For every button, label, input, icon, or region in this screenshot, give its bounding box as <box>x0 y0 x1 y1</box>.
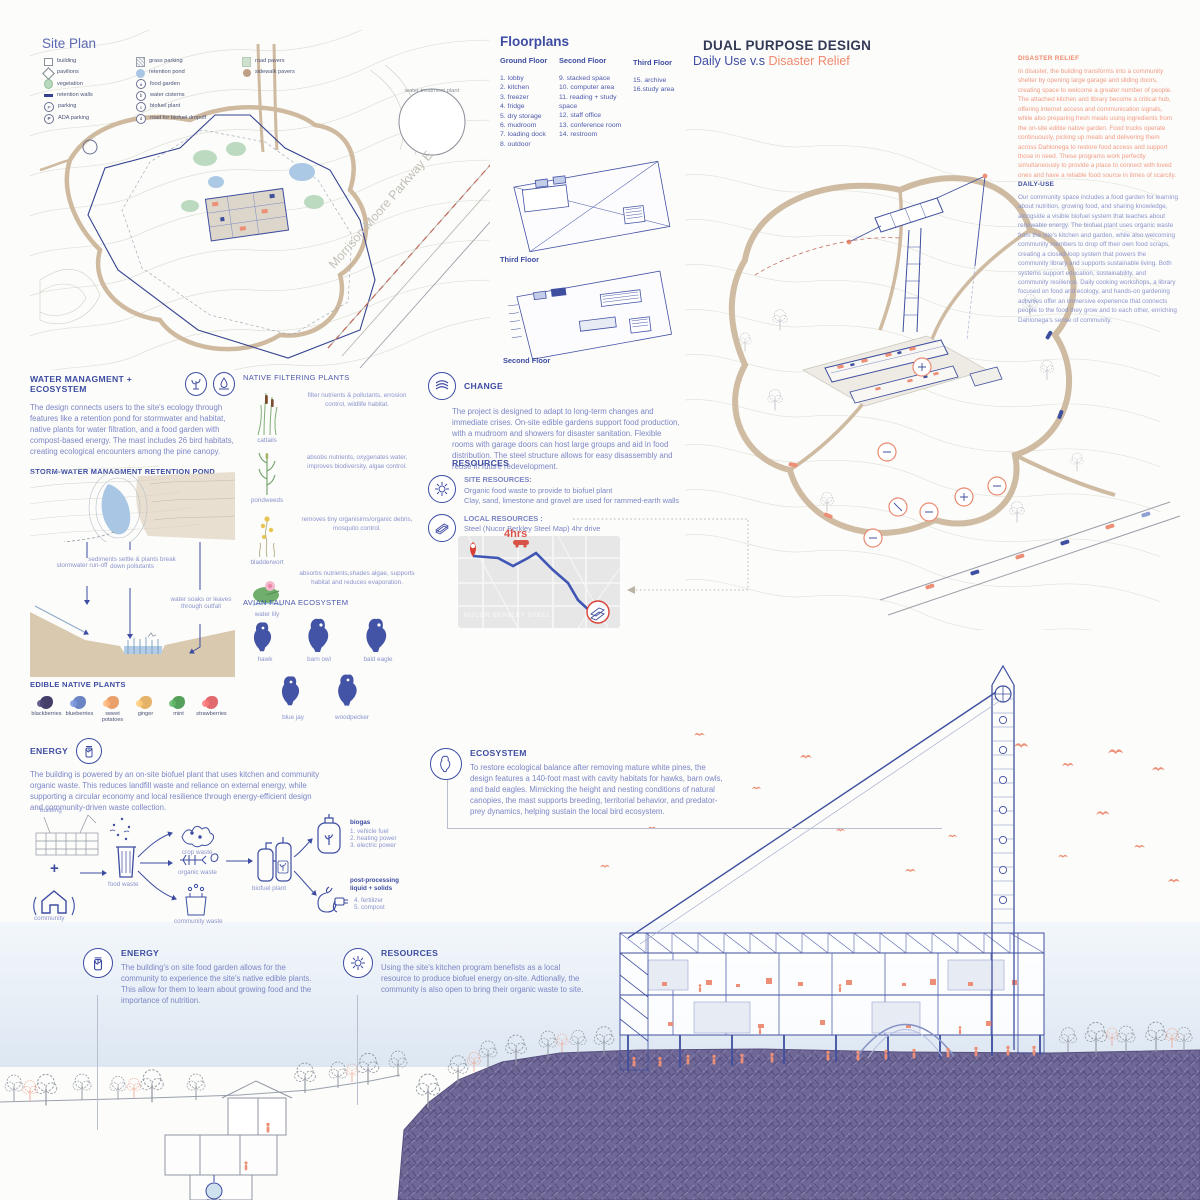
bladderwort-item: bladderwort <box>245 513 289 566</box>
kitchen-gear-icon <box>343 948 373 978</box>
legend-label: road for biofuel dropoff <box>150 116 218 122</box>
biofuel-jar-icon <box>76 738 102 764</box>
plant-icon <box>73 696 86 709</box>
filtering-heading: NATIVE FILTERING PLANTS <box>243 373 428 382</box>
second-floor-drawing-label: Second Floor <box>503 356 550 365</box>
floorplans-title: Floorplans <box>500 34 569 49</box>
organic-waste-label: organic waste <box>178 869 217 876</box>
resources-connector-line <box>357 995 358 1105</box>
plant-icon <box>172 696 185 709</box>
building-label: building <box>40 807 62 814</box>
floor-item: 11. reading + study space <box>559 93 629 111</box>
ecosystem-body: To restore ecological balance after remo… <box>470 762 725 817</box>
dual-subtitle-disaster: Disaster Relief <box>769 54 850 68</box>
water-heading: WATER MANAGMENT + ECOSYSTEM <box>30 374 179 394</box>
water-treatment-label: water treatment plant <box>400 88 464 95</box>
ecosystem-bird-icon <box>430 748 462 780</box>
biofuel-road-icon: d <box>136 114 146 124</box>
site-building <box>205 188 288 240</box>
food-waste-icon <box>110 818 136 877</box>
plant-icon <box>205 696 218 709</box>
drive-time-label: 4hrs <box>504 528 527 540</box>
biofuel-plant-label: biofuel plant <box>252 885 286 892</box>
site-plan-panel: Site Plan water treatment plant Morrison… <box>30 30 490 370</box>
ground-floor-list: 1. lobby2. kitchen3. freezer4. fridge5. … <box>500 74 556 149</box>
water-management-section: WATER MANAGMENT + ECOSYSTEM The design c… <box>30 372 235 476</box>
edible-plant: blueberries <box>63 696 96 723</box>
filtering-plants-section: NATIVE FILTERING PLANTS cattails filter … <box>243 373 428 382</box>
third-floor-header: Third Floor <box>633 58 689 68</box>
pondweeds-desc: absobs nutrients, oxygenates water, impr… <box>298 453 416 472</box>
post-processing-label: post-processing liquid + solids <box>350 877 408 893</box>
site-resources-label: SITE RESOURCES: <box>464 475 532 484</box>
legend-label: water cisterns <box>150 93 185 99</box>
plant-label: strawberries <box>195 711 228 717</box>
disaster-relief-block: DISASTER RELIEF In disaster, the buildin… <box>1018 55 1178 180</box>
nucor-label: NUCOR BERKLEY STEEL <box>464 612 551 619</box>
floor-item: 1. lobby <box>500 74 556 83</box>
bottom-energy-section: ENERGY The building's on site food garde… <box>83 948 318 1006</box>
avian-section: AVIAN FAUNA ECOSYSTEM hawk barn owl bald… <box>243 598 428 728</box>
floor-item: 5. dry storage <box>500 112 556 121</box>
post-item: 5. compost <box>354 904 385 911</box>
bottom-resources-heading: RESOURCES <box>381 948 589 958</box>
cattails-icon <box>252 389 282 437</box>
daily-use-block: DAILY-USE Our community space includes a… <box>1018 181 1178 325</box>
plus-sign: + <box>50 860 59 877</box>
energy-connector <box>97 995 98 1130</box>
plant-label: mint <box>162 711 195 717</box>
outfall-label: water soaks or leaves through outfall <box>168 596 234 610</box>
biofuel-plant-icon <box>258 837 291 881</box>
floor-item: 12. staff office <box>559 111 629 120</box>
biogas-tank-icon <box>318 814 340 853</box>
disaster-relief-body: In disaster, the building transforms int… <box>1018 67 1178 180</box>
retention-pond-plan <box>30 462 235 542</box>
legend-label: parking <box>58 104 76 110</box>
sidewalk-pavers-icon <box>243 69 251 77</box>
site-resources-icon <box>428 475 456 503</box>
sediments-label: sediments settle & plants break down pol… <box>88 556 176 570</box>
avian-heading: AVIAN FAUNA ECOSYSTEM <box>243 598 428 607</box>
post-item: 4. fertilizer <box>354 897 385 904</box>
legend-label: food garden <box>150 82 180 88</box>
edible-heading: EDIBLE NATIVE PLANTS <box>30 680 245 689</box>
bird-label: hawk <box>245 656 285 663</box>
floor-item: 6. mudroom <box>500 121 556 130</box>
third-floor-list: 15. archive16.study area <box>633 76 689 95</box>
vegetation-icon <box>44 79 53 89</box>
barn-owl-icon <box>308 619 328 652</box>
community-house-icon <box>34 891 75 915</box>
ada-parking-icon: P <box>44 114 54 124</box>
site-resources-line1: Organic food waste to provide to biofuel… <box>464 486 612 495</box>
local-resources-icon <box>428 514 456 542</box>
grass-parking-icon <box>136 57 145 67</box>
biogas-items: 1. vehicle fuel2. heating power3. electr… <box>350 828 397 849</box>
second-floor-list: 9. stacked space10. computer area11. rea… <box>559 74 629 139</box>
plant-label: ginger <box>129 711 162 717</box>
bladderwort-desc: removes tiny organisims/organic debris, … <box>298 515 416 534</box>
edible-plant: blackberries <box>30 696 63 723</box>
axon-trees <box>739 295 1084 523</box>
legend-label: biofuel plant <box>150 104 180 110</box>
cattails-item: cattails <box>245 389 289 444</box>
disaster-relief-heading: DISASTER RELIEF <box>1018 55 1178 62</box>
bottom-resources-body: Using the site's kitchen program benefis… <box>381 962 589 995</box>
edible-plant: mint <box>162 696 195 723</box>
bottom-energy-heading: ENERGY <box>121 948 317 958</box>
bird-label: barn owl <box>297 656 341 663</box>
water-cisterns-icon: b <box>136 91 146 101</box>
parking-icon: P <box>44 102 54 112</box>
edible-plant: sweet potatoes <box>96 696 129 723</box>
biogas-item: 1. vehicle fuel <box>350 828 397 835</box>
plant-icon <box>185 372 207 396</box>
pondweeds-icon <box>252 451 282 497</box>
dual-subtitle: Daily Use v.s Disaster Relief <box>693 54 850 68</box>
bird-label: bald eagle <box>353 656 403 663</box>
food-garden-icon: a <box>136 79 146 89</box>
community-waste-icon <box>186 884 206 915</box>
bottom-energy-body: The building's on site food garden allow… <box>121 962 317 1006</box>
ecosystem-section: ECOSYSTEM To restore ecological balance … <box>430 748 720 817</box>
floor-item: 3. freezer <box>500 93 556 102</box>
edible-plants-section: EDIBLE NATIVE PLANTS blackberries bluebe… <box>30 680 245 723</box>
legend-label: building <box>57 59 76 65</box>
dual-title: DUAL PURPOSE DESIGN <box>703 38 871 53</box>
building-sketch-icon <box>36 815 98 855</box>
bird-label: woodpecker <box>325 714 379 721</box>
pavilions-icon <box>42 67 55 80</box>
house-section <box>165 1081 292 1200</box>
energy-heading: ENERGY <box>30 746 68 756</box>
hawk-icon <box>254 622 271 651</box>
legend-label: retention walls <box>57 93 93 99</box>
pond <box>289 163 315 181</box>
food-garden-jar-icon <box>83 948 113 978</box>
site-resources-line2: Clay, sand, limestone and gravel are use… <box>464 496 679 505</box>
third-floor-drawing-label: Third Floor <box>500 255 539 264</box>
plant-label: blackberries <box>30 711 63 717</box>
retention-walls-icon <box>44 94 53 97</box>
crop-waste-label: crop waste <box>182 849 212 856</box>
community-label: community <box>34 915 64 922</box>
legend-label: ADA parking <box>58 116 89 122</box>
earth-mass <box>398 1049 1200 1200</box>
bald-eagle-icon <box>366 619 386 652</box>
site-plan-title: Site Plan <box>42 36 96 51</box>
blue-jay-icon <box>282 676 299 705</box>
community-waste-label: community waste <box>174 918 223 925</box>
change-heading: CHANGE <box>464 381 503 391</box>
post-items: 4. fertilizer5. compost <box>354 897 385 911</box>
daily-use-body: Our community space includes a food gard… <box>1018 193 1178 325</box>
change-icon <box>428 372 456 400</box>
resources-heading: RESOURCES <box>452 458 680 468</box>
energy-section: ENERGY The building is powered by an on-… <box>30 738 320 813</box>
water-body: The design connects users to the site's … <box>30 402 235 457</box>
ecosystem-heading: ECOSYSTEM <box>470 748 725 758</box>
legend-label: road pavers <box>255 59 285 65</box>
axon-crane <box>847 174 988 340</box>
retention-pond-icon <box>136 69 145 78</box>
plant-label: blueberries <box>63 711 96 717</box>
floor-item: 13. conference room <box>559 121 629 130</box>
ecosystem-connector-h <box>447 828 942 829</box>
crop-waste-icon <box>182 826 214 846</box>
food-waste-label: food waste <box>108 881 138 888</box>
cattails-desc: filter nutrients & pollutants, errosion … <box>298 391 416 410</box>
floor-item: 4. fridge <box>500 102 556 111</box>
floor-item: 15. archive <box>633 76 689 85</box>
biogas-label: biogas <box>350 819 370 826</box>
axon-building <box>803 336 1002 406</box>
plant-icon <box>106 696 119 709</box>
floor-item: 9. stacked space <box>559 74 629 83</box>
floor-item: 16.study area <box>633 85 689 94</box>
floor-item: 7. loading dock <box>500 130 556 139</box>
floor-item: 2. kitchen <box>500 83 556 92</box>
bladderwort-icon <box>252 513 282 559</box>
plant-icon <box>40 696 53 709</box>
ground-floor-header: Ground Floor <box>500 56 556 66</box>
dual-subtitle-daily: Daily Use v.s <box>693 54 765 68</box>
bird-label: blue jay <box>271 714 315 721</box>
edible-plant: strawberries <box>195 696 228 723</box>
nucor-map: 4hrs NUCOR BERKLEY STEEL <box>458 528 620 628</box>
water-drop-icon <box>213 372 235 396</box>
pondweeds-item: pondweeds <box>245 451 289 504</box>
building-icon <box>44 58 53 66</box>
local-resources-label: LOCAL RESOURCES : <box>464 514 543 523</box>
biofuel-plant-icon: c <box>136 102 146 112</box>
site-plan-legend: building pavilions vegetation retention … <box>44 56 306 124</box>
second-floor-header: Second Floor <box>559 56 629 66</box>
steel-destination-icon <box>587 601 609 623</box>
daily-use-heading: DAILY-USE <box>1018 181 1178 188</box>
legend-label: sidewalk pavers <box>255 70 295 76</box>
presentation-board: { "colors": {"navy":"#3d4ca2","salmon":"… <box>0 0 1200 1200</box>
road-pavers-icon <box>242 57 251 67</box>
bird-illustrations <box>243 612 428 722</box>
floorplans-panel: Floorplans Ground Floor 1. lobby2. kitch… <box>495 30 690 370</box>
legend-label: vegetation <box>57 82 83 88</box>
biogas-item: 2. heating power <box>350 835 397 842</box>
biofuel-flow-diagram: building + community food waste crop was… <box>30 805 410 935</box>
plant-label: sweet potatoes <box>96 711 129 723</box>
retention-pond-shape <box>102 484 131 534</box>
legend-label: retention pond <box>149 70 185 76</box>
legend-label: grass parking <box>149 59 183 65</box>
floor-item: 14. restroom <box>559 130 629 139</box>
post-processing-icon <box>318 887 348 912</box>
floor-item: 10. computer area <box>559 83 629 92</box>
water-lily-desc: absorbs nutrients,shades algae, supports… <box>298 569 416 588</box>
edible-items: blackberries blueberries sweet potatoes … <box>30 696 245 723</box>
edible-plant: ginger <box>129 696 162 723</box>
biogas-item: 3. electric power <box>350 842 397 849</box>
bottom-resources-section: RESOURCES Using the site's kitchen progr… <box>343 948 593 995</box>
legend-label: pavilions <box>57 70 79 76</box>
plant-icon <box>139 696 152 709</box>
